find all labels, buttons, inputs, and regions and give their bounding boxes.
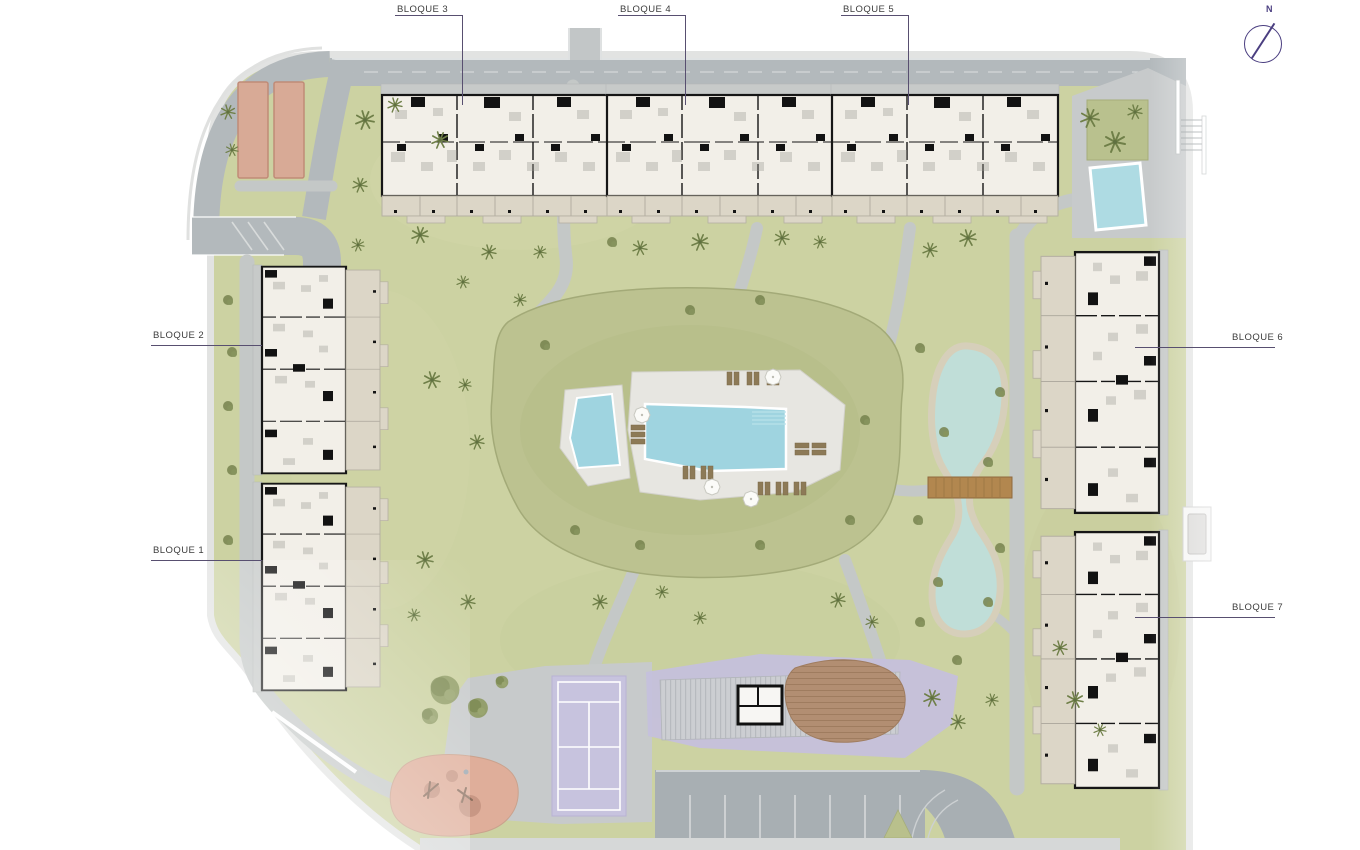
bloque-2-building <box>253 265 388 475</box>
edge-fade-bottom-left <box>170 560 470 850</box>
leader-line-bloque-5 <box>841 15 909 16</box>
tennis-court <box>552 676 626 816</box>
label-text: BLOQUE 4 <box>620 4 671 15</box>
leader-line-bloque-4 <box>618 15 686 16</box>
label-bloque-6: BLOQUE 6 <box>1232 332 1283 343</box>
bloque-3-building <box>381 84 609 223</box>
label-text: BLOQUE 7 <box>1232 602 1283 613</box>
bloque-5-building <box>831 84 1059 223</box>
pool-house <box>738 686 782 724</box>
site-plan-canvas <box>0 0 1360 850</box>
label-text: BLOQUE 2 <box>153 330 204 341</box>
edge-fade-right <box>1150 0 1360 850</box>
label-text: BLOQUE 1 <box>153 545 204 556</box>
label-bloque-7: BLOQUE 7 <box>1232 602 1283 613</box>
leader-line-bloque-3-v <box>462 15 463 105</box>
bloque-4-building <box>606 84 834 223</box>
plaza-pool <box>1090 163 1146 230</box>
leader-line-bloque-3 <box>395 15 463 16</box>
label-bloque-4: BLOQUE 4 <box>620 4 671 15</box>
label-bloque-3: BLOQUE 3 <box>397 4 448 15</box>
site-plan: BLOQUE 3 BLOQUE 4 BLOQUE 5 BLOQUE 2 BLOQ… <box>0 0 1360 850</box>
main-pool <box>645 404 786 471</box>
lake-bridge <box>928 477 1012 498</box>
south-road <box>420 838 1120 850</box>
leader-line-bloque-5-v <box>908 15 909 105</box>
wood-deck <box>785 660 905 743</box>
label-text: BLOQUE 5 <box>843 4 894 15</box>
leader-line-bloque-7 <box>1135 617 1275 618</box>
leader-line-bloque-1 <box>151 560 262 561</box>
north-compass: N <box>1243 4 1303 74</box>
leader-line-bloque-2 <box>151 345 262 346</box>
pergola-zone <box>646 654 958 758</box>
bloque-6-building <box>1033 250 1168 515</box>
kids-pool <box>570 394 620 468</box>
label-bloque-1: BLOQUE 1 <box>153 545 204 556</box>
label-text: BLOQUE 3 <box>397 4 448 15</box>
north-label: N <box>1266 4 1273 14</box>
label-text: BLOQUE 6 <box>1232 332 1283 343</box>
leader-line-bloque-6 <box>1135 347 1275 348</box>
bloque-7-building <box>1033 530 1168 790</box>
label-bloque-5: BLOQUE 5 <box>843 4 894 15</box>
label-bloque-2: BLOQUE 2 <box>153 330 204 341</box>
leader-line-bloque-4-v <box>685 15 686 105</box>
